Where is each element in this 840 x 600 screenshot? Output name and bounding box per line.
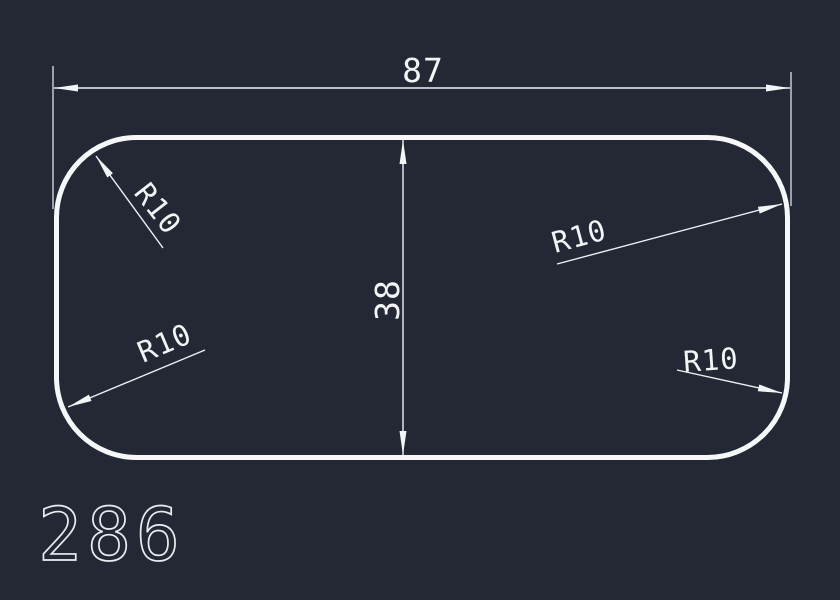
cad-canvas[interactable]: 87 38 R10 R10 R10 xyxy=(0,0,840,600)
drawing-number: 286 xyxy=(38,493,185,578)
dimension-height-value: 38 xyxy=(368,279,407,321)
dimension-width-value: 87 xyxy=(402,51,444,90)
cad-viewport[interactable]: 87 38 R10 R10 R10 xyxy=(0,0,840,600)
radius-label: R10 xyxy=(682,341,740,379)
